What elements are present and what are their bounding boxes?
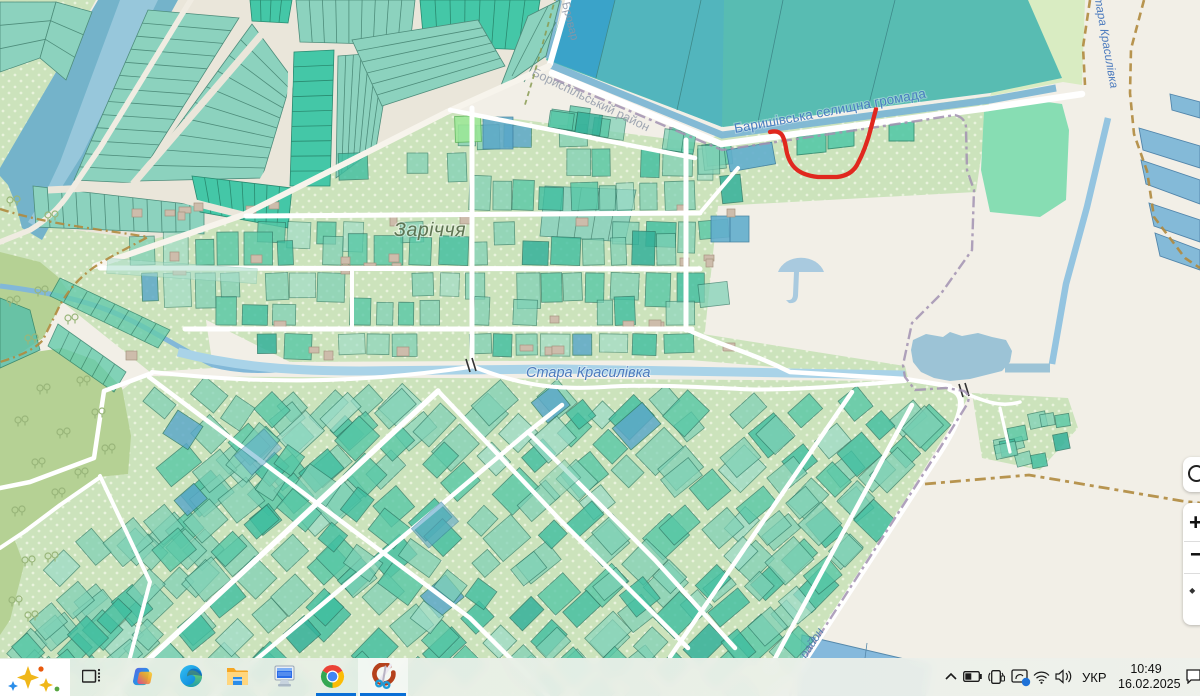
svg-text:Заріччя: Заріччя (394, 219, 466, 241)
svg-text:Стара Красилівка: Стара Красилівка (526, 365, 650, 381)
